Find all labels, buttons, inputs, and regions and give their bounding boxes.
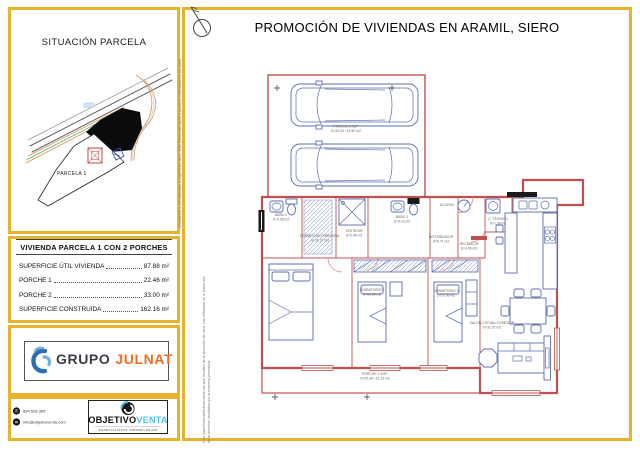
road-label-badge bbox=[84, 103, 94, 108]
objetivoventa-wordmark: OBJETIVOVENTA bbox=[88, 415, 168, 425]
room-label: BAÑO 1 bbox=[396, 214, 409, 219]
table-row: SUPERFICIE CONSTRUIDA 162.16 m² bbox=[16, 306, 172, 313]
venta-word: VENTA bbox=[136, 415, 167, 425]
promo-sheet: SITUACIÓN PARCELA PROMOCIÓN DE VIVIENDAS… bbox=[0, 0, 640, 452]
situacion-map: PARCELA 1 bbox=[12, 48, 176, 228]
grupo-julnat-wordmark: GRUPOJULNAT bbox=[56, 351, 173, 367]
svg-text:✆: ✆ bbox=[15, 409, 19, 414]
parcel-label: PARCELA 1 bbox=[57, 171, 87, 177]
garage-porche2 bbox=[268, 75, 425, 197]
surface-row-label: PORCHE 2 bbox=[19, 292, 52, 299]
master-bed bbox=[269, 264, 313, 340]
car-1 bbox=[291, 81, 418, 129]
porche2-size: S=33.00 / 16.50 m2 bbox=[331, 129, 361, 133]
email-address: info@objetivoventa.com bbox=[23, 420, 66, 425]
north-arrow-icon bbox=[186, 6, 220, 40]
tv-console bbox=[544, 336, 551, 380]
page-title: PROMOCIÓN DE VIVIENDAS EN ARAMIL, SIERO bbox=[182, 20, 632, 35]
surface-row-label: SUPERFICIE ÚTIL VIVIENDA bbox=[19, 263, 104, 270]
surface-row-value: 22.46 m² bbox=[144, 277, 169, 284]
julnat-word: JULNAT bbox=[115, 351, 173, 367]
room-label: C. TÉCNICO bbox=[488, 216, 508, 221]
floor-plan: PORCHE 2 SUP. S=33.00 / 16.50 m2 PORCHE … bbox=[255, 60, 630, 405]
shower bbox=[339, 199, 365, 225]
situacion-title: SITUACIÓN PARCELA bbox=[8, 37, 180, 48]
room-size: S=5.12 m2 bbox=[394, 219, 411, 223]
porche2-label: PORCHE 2 SUP. bbox=[333, 125, 359, 129]
porche1-size: S=22.46 / 11.23 m2 bbox=[360, 377, 390, 381]
room-size: S=5.05 m2 bbox=[346, 233, 363, 237]
surface-row-value: 33.00 m² bbox=[144, 292, 169, 299]
room-size: S=32.37 m2 bbox=[483, 325, 501, 329]
red-step bbox=[471, 236, 487, 240]
surface-table: VIVIENDA PARCELA 1 CON 2 PORCHES SUPERFI… bbox=[16, 239, 172, 313]
porche1-label: PORCHE 1 SUP. bbox=[362, 372, 388, 376]
room-label: ACCESO bbox=[440, 203, 455, 207]
room-size: S=10.98 m2 bbox=[363, 292, 381, 296]
surface-row-value: 162.16 m² bbox=[140, 306, 169, 313]
contact-block: ✆ 684 528 365 ✉ info@objetivoventa.com bbox=[12, 406, 88, 430]
table-row: SUPERFICIE ÚTIL VIVIENDA 87.88 m² bbox=[16, 263, 172, 270]
surface-row-label: SUPERFICIE CONSTRUIDA bbox=[19, 306, 101, 313]
room-size: S=16.27 m2 bbox=[311, 238, 329, 242]
surface-row-label: PORCHE 1 bbox=[19, 277, 52, 284]
surface-table-title: VIVIENDA PARCELA 1 CON 2 PORCHES bbox=[16, 239, 172, 255]
entry-doormat bbox=[507, 192, 537, 197]
room-size: S=5.71 m2 bbox=[433, 239, 450, 243]
room-size: S=4.96 m2 bbox=[461, 246, 478, 250]
room-size: S=10.98 m2 bbox=[437, 293, 455, 297]
table-row: PORCHE 1 22.46 m² bbox=[16, 277, 172, 284]
svg-text:✉: ✉ bbox=[15, 420, 19, 425]
dotted-leader bbox=[54, 281, 142, 283]
parcel-house-marker bbox=[88, 148, 102, 163]
objetivoventa-icon bbox=[120, 401, 136, 416]
car-2 bbox=[291, 141, 418, 189]
surface-row-value: 87.88 m² bbox=[144, 263, 169, 270]
room-size: S=1.34 m2 bbox=[490, 221, 507, 225]
dotted-leader bbox=[54, 296, 142, 298]
dotted-leader bbox=[106, 267, 141, 269]
room-label: BAÑO 2 bbox=[275, 212, 288, 217]
grupo-word: GRUPO bbox=[56, 351, 110, 367]
objetivo-word: OBJETIVO bbox=[88, 415, 136, 425]
grupo-julnat-icon bbox=[30, 346, 54, 376]
phone-number: 684 528 365 bbox=[23, 409, 46, 414]
room-size: S=4.35 m2 bbox=[273, 217, 290, 221]
tagline-text: ESPECIALISTAS INMOBILIARIOS bbox=[99, 428, 158, 432]
objetivoventa-tagline: ESPECIALISTAS INMOBILIARIOS bbox=[89, 426, 167, 434]
table-row: PORCHE 2 33.00 m² bbox=[16, 292, 172, 299]
dotted-leader bbox=[103, 310, 138, 312]
closet-hatch bbox=[304, 200, 332, 254]
